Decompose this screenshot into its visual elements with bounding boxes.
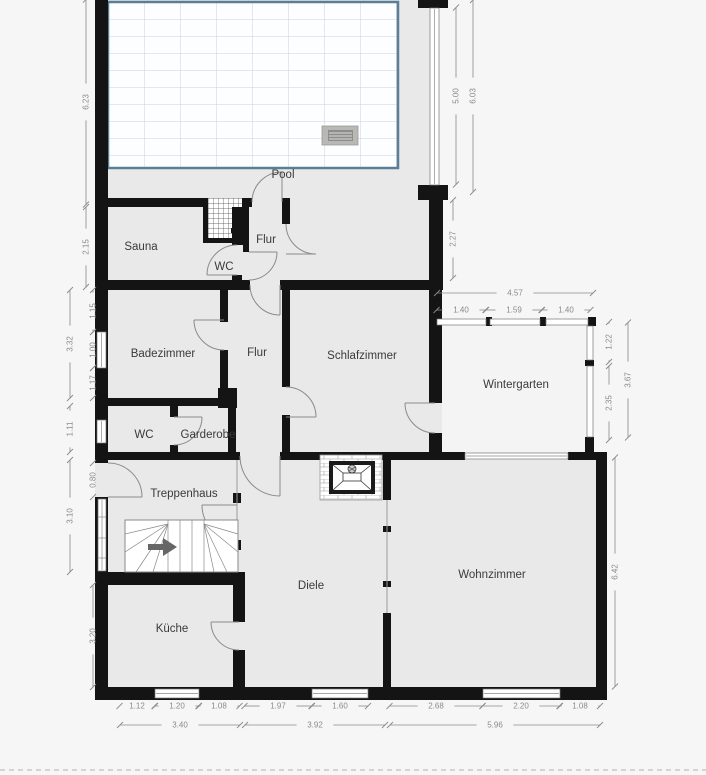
- floor-plan-page: 6.232.151.151.001.173.321.110.803.103.20…: [0, 0, 706, 775]
- dimension: 1.08: [557, 702, 603, 711]
- dimension: 1.20: [152, 702, 202, 711]
- room-label-flur: Flur: [247, 347, 267, 359]
- dimension: 3.32: [66, 287, 75, 401]
- dimension-label: 1.22: [605, 334, 614, 350]
- dimension-label: 1.59: [506, 306, 522, 315]
- dimension-label: 4.57: [507, 289, 523, 298]
- dimension: 1.11: [66, 403, 75, 455]
- room-label-badezimmer: Badezimmer: [131, 348, 196, 360]
- dimension: 4.57: [434, 289, 596, 298]
- room-label-küche: Küche: [156, 623, 189, 635]
- dimension-label: 2.20: [513, 702, 529, 711]
- dimension-label: 3.10: [66, 508, 75, 524]
- dimension-label: 1.20: [169, 702, 185, 711]
- room-label-schlafzimmer: Schlafzimmer: [327, 350, 397, 362]
- dimension-label: 5.96: [487, 721, 503, 730]
- dimension: 2.27: [449, 197, 458, 281]
- dimension: 6.23: [82, 0, 91, 208]
- dimension: 1.22: [605, 319, 614, 365]
- dimension: 1.08: [196, 702, 243, 711]
- room-label-pool: Pool: [271, 169, 294, 181]
- room-label-treppenhaus: Treppenhaus: [150, 488, 218, 500]
- pool-basin: [108, 2, 398, 168]
- dimension: 3.92: [242, 721, 388, 730]
- dimension-label: 6.42: [611, 564, 620, 580]
- dimension: 2.35: [605, 363, 614, 443]
- dimension: 1.97: [242, 702, 315, 711]
- dimension: 3.10: [66, 457, 75, 575]
- fireplace-icon: [320, 455, 382, 500]
- dimension: 1.12: [117, 702, 158, 711]
- floor-plan-svg: 6.232.151.151.001.173.321.110.803.103.20…: [0, 0, 706, 775]
- dimension-label: 5.00: [452, 88, 461, 104]
- dimension-label: 6.23: [82, 94, 91, 110]
- dimension-label: 1.97: [270, 702, 286, 711]
- dimension-label: 2.35: [605, 395, 614, 411]
- dimension-label: 3.92: [307, 721, 323, 730]
- dimension-label: 2.68: [428, 702, 444, 711]
- dimension-label: 2.27: [449, 231, 458, 247]
- stairs: [125, 520, 238, 572]
- pool-drain-icon: [322, 126, 358, 145]
- dimension-label: 1.00: [89, 342, 98, 358]
- dimension-label: 1.11: [66, 421, 75, 437]
- dimension-label: 1.40: [558, 306, 574, 315]
- room-label-wohnzimmer: Wohnzimmer: [458, 569, 526, 581]
- room-label-garderobe: Garderobe: [181, 429, 236, 441]
- room-label-flur: Flur: [256, 234, 276, 246]
- dimension-label: 1.15: [89, 303, 98, 319]
- dimension: 5.96: [387, 721, 603, 730]
- room-label-wintergarten: Wintergarten: [483, 379, 549, 391]
- dimension-label: 6.03: [469, 88, 478, 104]
- dimension-label: 1.08: [211, 702, 227, 711]
- room-label-wc: WC: [134, 429, 153, 441]
- dimension: 2.20: [480, 702, 563, 711]
- dimension-label: 3.32: [66, 336, 75, 352]
- room-label-wc: WC: [214, 261, 233, 273]
- dimension-label: 1.40: [453, 306, 469, 315]
- dimension: 2.15: [82, 204, 91, 290]
- dimension-label: 3.67: [624, 372, 633, 388]
- dimension-label: 0.80: [89, 472, 98, 488]
- dimension: 1.59: [483, 306, 545, 315]
- dimension-label: 3.20: [89, 628, 98, 644]
- dimension: 5.00: [452, 5, 461, 188]
- dimension: 1.60: [309, 702, 371, 711]
- dimension-label: 1.08: [572, 702, 588, 711]
- dimension-label: 1.12: [129, 702, 145, 711]
- dimension-label: 1.17: [89, 375, 98, 391]
- dimension-label: 2.15: [82, 239, 91, 255]
- dimension-label: 3.40: [172, 721, 188, 730]
- dimension: 3.67: [624, 320, 633, 441]
- dimension: 1.40: [539, 306, 594, 315]
- room-label-sauna: Sauna: [124, 241, 158, 253]
- dimension: 3.40: [117, 721, 243, 730]
- dimension: 6.42: [611, 455, 620, 690]
- room-label-diele: Diele: [298, 580, 324, 592]
- dimension: 2.68: [387, 702, 486, 711]
- dimension: 6.03: [469, 0, 478, 195]
- dimension-label: 1.60: [332, 702, 348, 711]
